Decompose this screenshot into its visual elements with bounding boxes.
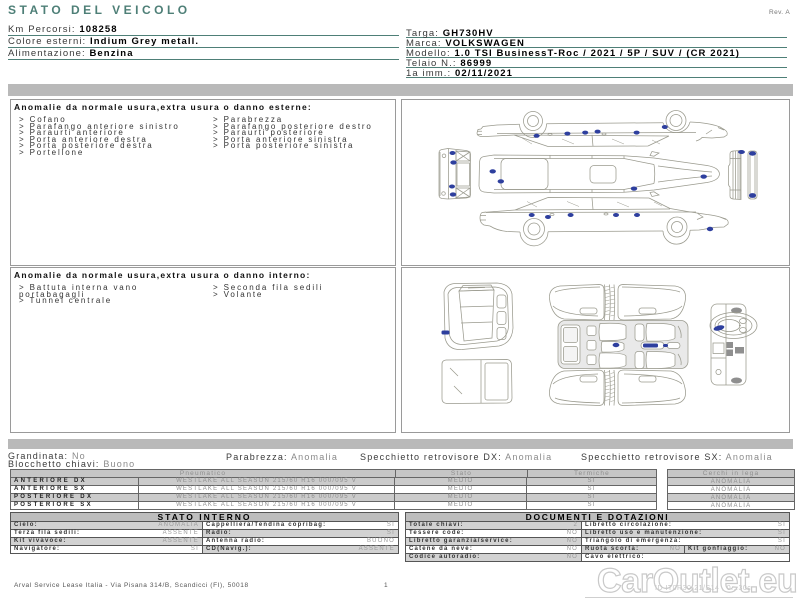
svg-text:CarOutlet.eu: CarOutlet.eu <box>597 562 797 600</box>
